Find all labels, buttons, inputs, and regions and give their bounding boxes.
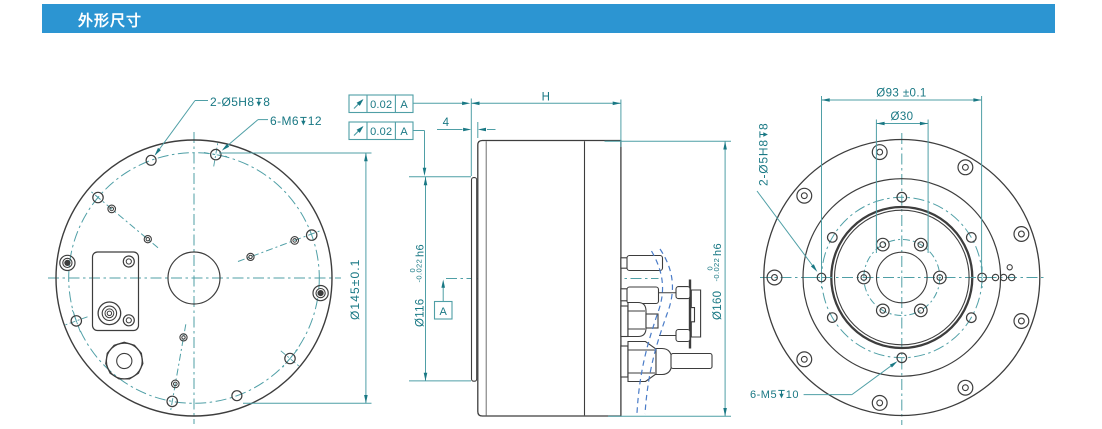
svg-text:Ø93 ±0.1: Ø93 ±0.1 — [876, 88, 926, 100]
svg-text:h6: h6 — [712, 243, 724, 256]
svg-text:Ø145±0.1: Ø145±0.1 — [348, 259, 362, 320]
svg-text:A: A — [400, 126, 408, 138]
svg-text:4: 4 — [443, 117, 450, 129]
svg-text:H: H — [542, 92, 551, 104]
svg-text:外形尺寸: 外形尺寸 — [77, 12, 142, 30]
svg-text:8: 8 — [263, 95, 270, 109]
svg-text:8: 8 — [757, 123, 771, 130]
svg-text:0.02: 0.02 — [370, 99, 392, 111]
svg-text:2-Ø5H8: 2-Ø5H8 — [210, 95, 254, 109]
svg-text:Ø116: Ø116 — [415, 299, 427, 327]
svg-text:10: 10 — [786, 389, 799, 401]
svg-text:Ø30: Ø30 — [891, 111, 914, 123]
svg-text:6-M6: 6-M6 — [270, 114, 299, 128]
svg-text:A: A — [400, 99, 408, 111]
svg-text:-0.022: -0.022 — [415, 259, 424, 283]
svg-text:A: A — [440, 306, 448, 318]
svg-text:12: 12 — [308, 114, 322, 128]
svg-text:h6: h6 — [415, 244, 427, 257]
svg-text:6-M5: 6-M5 — [750, 389, 777, 401]
svg-text:0.02: 0.02 — [370, 126, 392, 138]
svg-text:2-Ø5H8: 2-Ø5H8 — [757, 139, 771, 186]
svg-text:Ø160: Ø160 — [712, 291, 724, 320]
svg-text:-0.022: -0.022 — [712, 258, 721, 282]
